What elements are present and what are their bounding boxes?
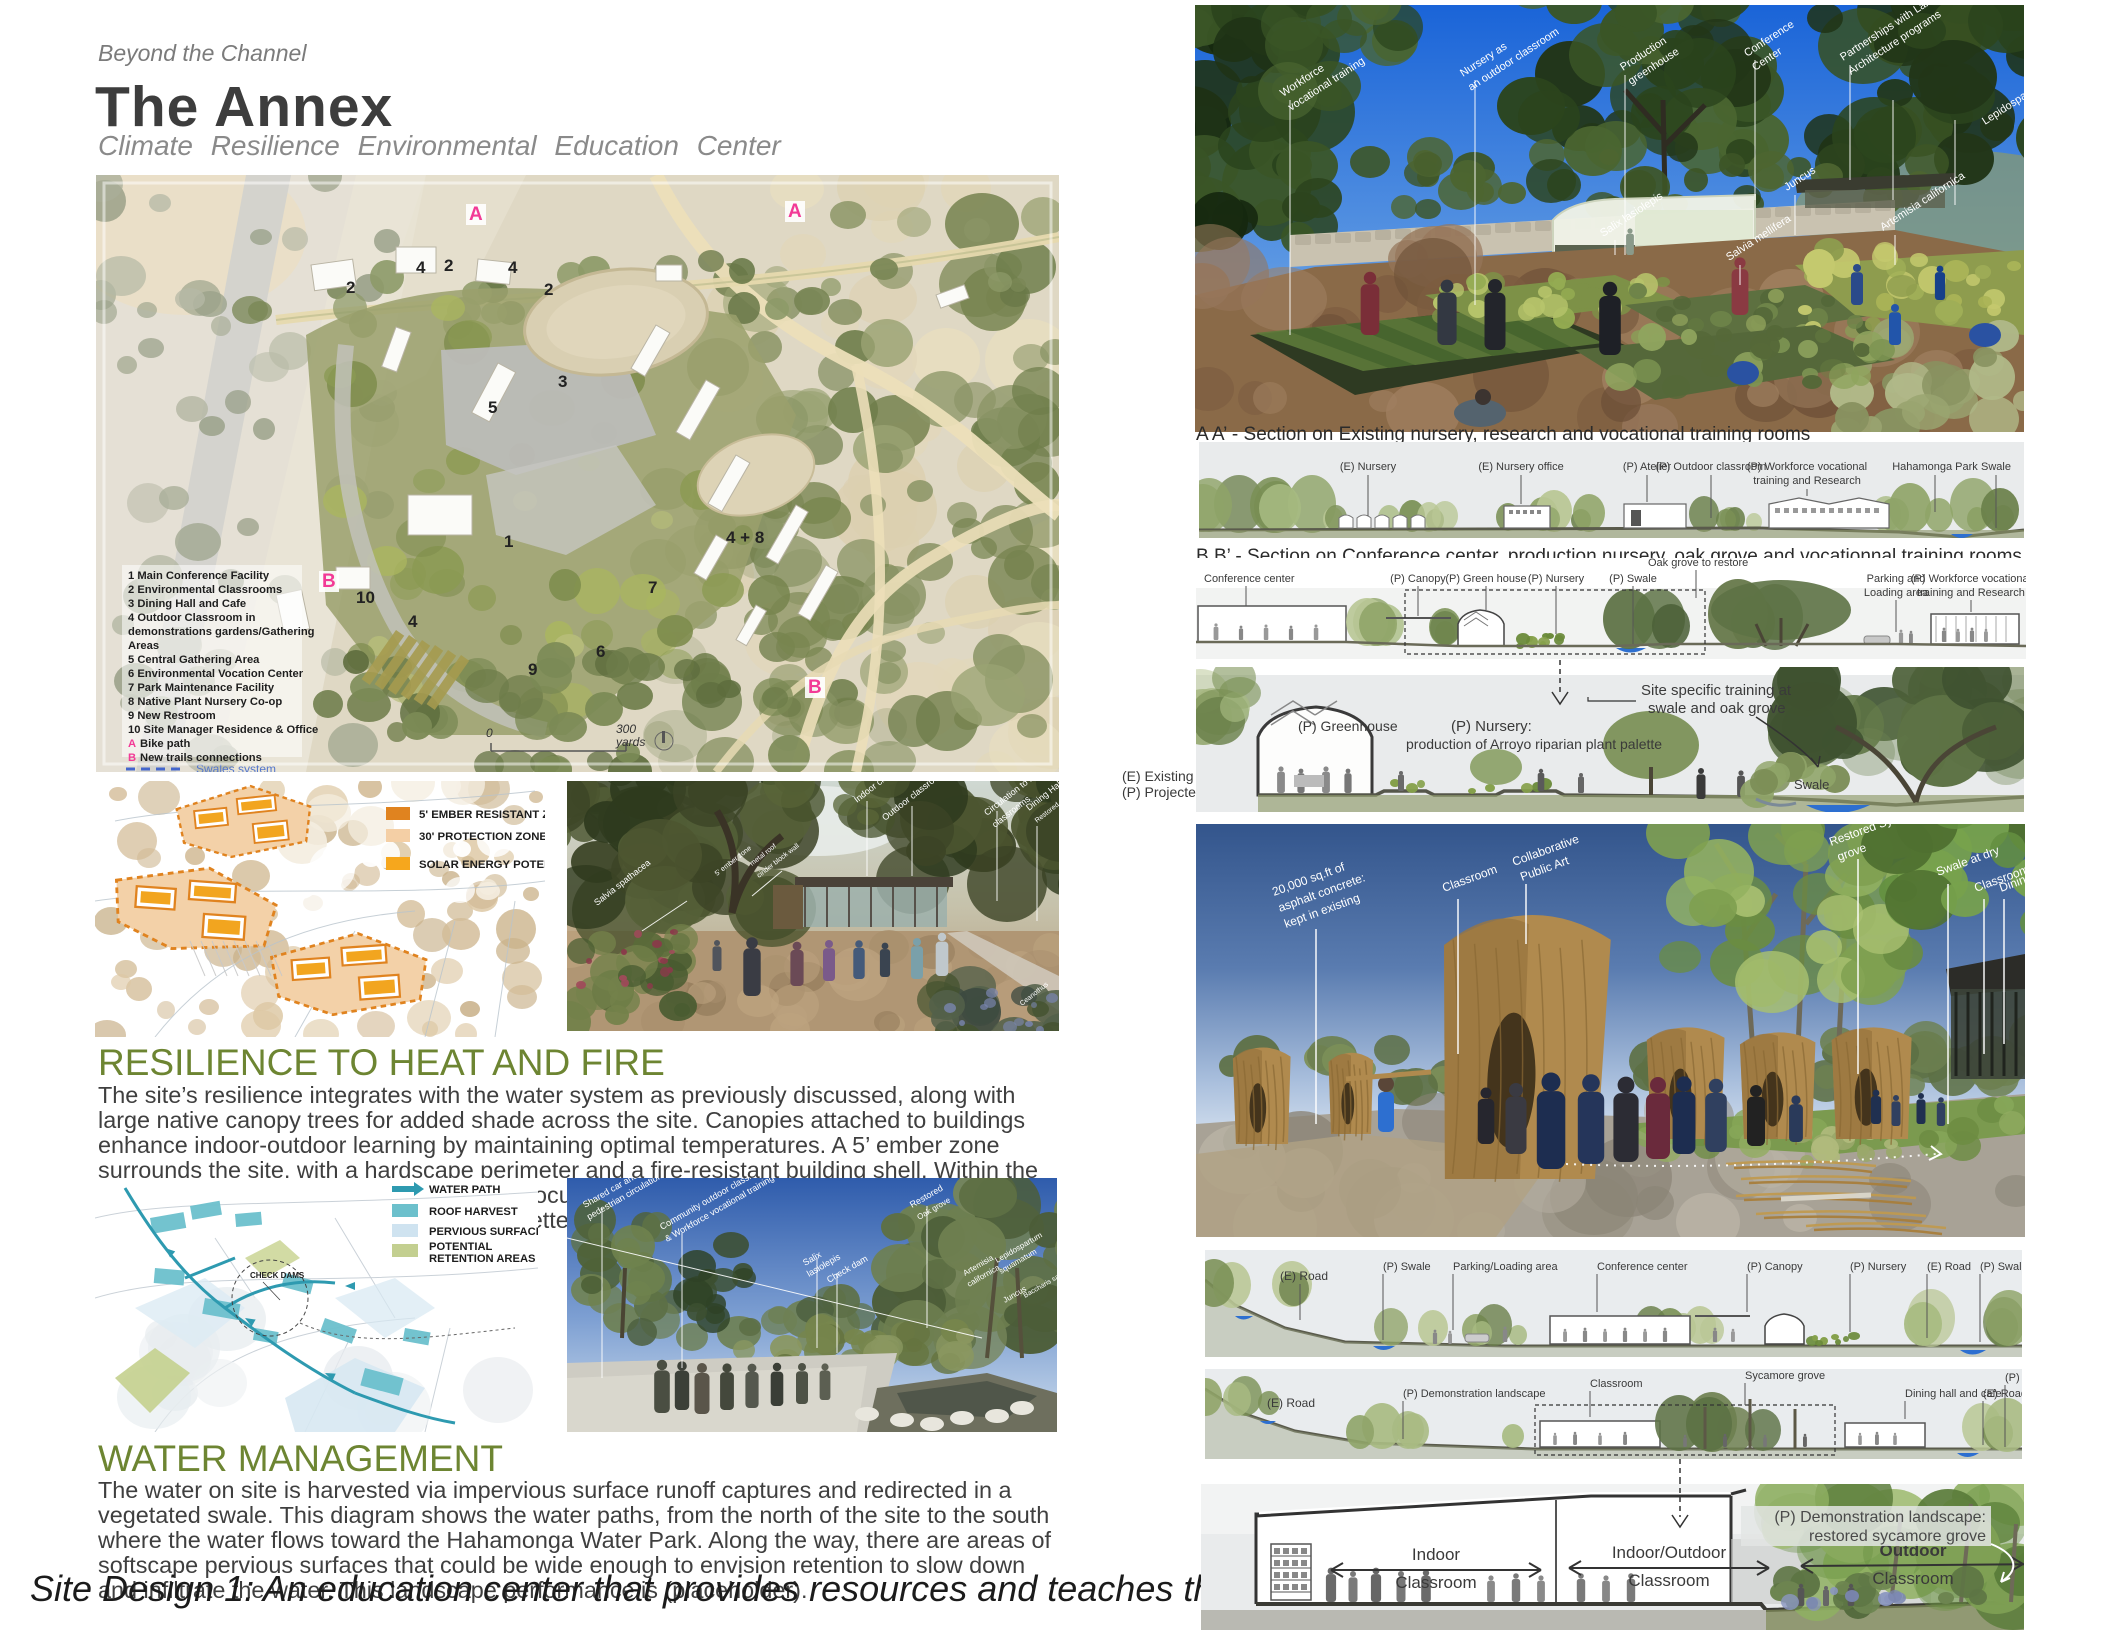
svg-text:2 Environmental Classrooms: 2 Environmental Classrooms: [128, 584, 282, 596]
svg-text:2: 2: [346, 278, 355, 297]
svg-text:5' EMBER RESISTANT ZONE: 5' EMBER RESISTANT ZONE: [419, 809, 545, 821]
svg-text:Bike path: Bike path: [140, 738, 191, 750]
svg-text:B: B: [322, 571, 336, 592]
svg-text:Indoor/Outdoor: Indoor/Outdoor: [1612, 1543, 1727, 1562]
svg-text:(P) Swale: (P) Swale: [1980, 1261, 2022, 1273]
svg-text:SOLAR ENERGY POTENTIAL: SOLAR ENERGY POTENTIAL: [419, 859, 545, 871]
svg-text:6: 6: [596, 642, 605, 661]
svg-text:(P) Canopy: (P) Canopy: [1747, 1261, 1803, 1273]
svg-text:Indoor: Indoor: [1412, 1545, 1461, 1564]
svg-text:(P) Demonstration landscape: (P) Demonstration landscape: [1403, 1388, 1545, 1400]
svg-text:Swale: Swale: [1794, 777, 1829, 792]
svg-text:(P) Green house: (P) Green house: [1445, 573, 1526, 585]
svg-text:6 Environmental Vocation Cente: 6 Environmental Vocation Center: [128, 668, 304, 680]
svg-text:(E) Road: (E) Road: [1983, 1388, 2022, 1400]
svg-text:(E) Nursery office: (E) Nursery office: [1478, 461, 1563, 473]
svg-text:Conference center: Conference center: [1204, 573, 1295, 585]
svg-text:(P) Swale: (P) Swale: [1609, 573, 1657, 585]
svg-text:Swale: Swale: [1981, 461, 2011, 473]
svg-text:training and Research: training and Research: [1753, 475, 1861, 487]
svg-text:PERVIOUS SURFACES: PERVIOUS SURFACES: [429, 1226, 538, 1238]
svg-text:(E) Road: (E) Road: [1927, 1261, 1971, 1273]
svg-text:ROOF HARVEST: ROOF HARVEST: [429, 1206, 518, 1218]
svg-text:300: 300: [616, 722, 636, 736]
svg-text:(P) Workforce vocational: (P) Workforce vocational: [1911, 573, 2026, 585]
svg-text:Areas: Areas: [128, 640, 159, 652]
svg-text:Conference center: Conference center: [1597, 1261, 1688, 1273]
svg-text:1: 1: [504, 532, 513, 551]
svg-text:Classroom: Classroom: [1395, 1573, 1476, 1592]
svg-text:(P) Demonstration landscape:: (P) Demonstration landscape:: [1774, 1509, 1986, 1526]
svg-text:restored sycamore grove: restored sycamore grove: [1809, 1528, 1986, 1545]
svg-text:Sycamore grove: Sycamore grove: [1745, 1370, 1825, 1382]
svg-text:(E) Road: (E) Road: [1267, 1396, 1315, 1410]
svg-text:production of Arroyo riparian: production of Arroyo riparian plant pale…: [1406, 736, 1662, 752]
svg-text:A: A: [788, 201, 802, 222]
svg-text:0: 0: [486, 726, 493, 740]
svg-text:swale and oak grove: swale and oak grove: [1648, 700, 1786, 717]
svg-text:4 Outdoor Classroom in: 4 Outdoor Classroom in: [128, 612, 256, 624]
svg-text:(P) Greenhouse: (P) Greenhouse: [1298, 718, 1398, 734]
svg-text:7: 7: [648, 578, 657, 597]
svg-text:Site specific training at: Site specific training at: [1641, 682, 1792, 699]
svg-text:10: 10: [356, 588, 375, 607]
svg-text:Parking/Loading area: Parking/Loading area: [1453, 1261, 1558, 1273]
svg-text:4 + 8: 4 + 8: [726, 528, 764, 547]
svg-text:(E) Nursery: (E) Nursery: [1340, 461, 1397, 473]
svg-text:(P) Nursery:: (P) Nursery:: [1451, 718, 1532, 735]
svg-text:4: 4: [416, 258, 426, 277]
svg-text:POTENTIAL: POTENTIAL: [429, 1241, 493, 1253]
svg-text:5: 5: [488, 398, 497, 417]
svg-text:1 Main Conference Facility: 1 Main Conference Facility: [128, 570, 270, 582]
svg-text:4: 4: [508, 258, 518, 277]
svg-text:7 Park Maintenance Facility: 7 Park Maintenance Facility: [128, 682, 275, 694]
svg-text:(P) Nursery: (P) Nursery: [1850, 1261, 1907, 1273]
svg-text:(P) Canopy: (P) Canopy: [1390, 573, 1446, 585]
svg-text:Classroom: Classroom: [1628, 1571, 1709, 1590]
svg-text:(P) Workforce vocational: (P) Workforce vocational: [1747, 461, 1867, 473]
svg-text:RETENTION AREAS: RETENTION AREAS: [429, 1253, 536, 1265]
svg-text:CHECK DAMS: CHECK DAMS: [250, 1271, 305, 1280]
svg-text:3 Dining Hall and Cafe: 3 Dining Hall and Cafe: [128, 598, 246, 610]
svg-text:9 New Restroom: 9 New Restroom: [128, 710, 216, 722]
svg-text:4: 4: [408, 612, 418, 631]
svg-text:5 Central Gathering Area: 5 Central Gathering Area: [128, 654, 260, 666]
svg-text:B: B: [808, 677, 822, 698]
svg-text:8 Native Plant Nursery Co-op: 8 Native Plant Nursery Co-op: [128, 696, 282, 708]
svg-text:WATER PATH: WATER PATH: [429, 1184, 500, 1196]
svg-text:9: 9: [528, 660, 537, 679]
svg-text:(P) Swale: (P) Swale: [1383, 1261, 1431, 1273]
svg-text:(E) Road: (E) Road: [1280, 1269, 1328, 1283]
svg-text:A: A: [469, 204, 483, 225]
svg-text:(P) Nursery: (P) Nursery: [1528, 573, 1585, 585]
svg-text:training and Research: training and Research: [1917, 587, 2025, 599]
svg-text:Oak grove to restore: Oak grove to restore: [1648, 558, 1748, 569]
svg-text:Classroom: Classroom: [1590, 1378, 1643, 1390]
svg-text:10 Site Manager Residence & Of: 10 Site Manager Residence & Office: [128, 724, 318, 736]
svg-text:30' PROTECTION ZONE: 30' PROTECTION ZONE: [419, 831, 545, 843]
svg-text:2: 2: [544, 280, 553, 299]
svg-text:(P) Swale: (P) Swale: [2005, 1372, 2022, 1384]
svg-text:Hahamonga Park: Hahamonga Park: [1892, 461, 1978, 473]
svg-text:A: A: [128, 738, 136, 750]
svg-text:3: 3: [558, 372, 567, 391]
svg-text:B: B: [128, 752, 136, 764]
svg-text:demonstrations gardens/Gatheri: demonstrations gardens/Gathering: [128, 626, 315, 638]
svg-text:2: 2: [444, 256, 453, 275]
svg-text:yards: yards: [615, 735, 645, 749]
svg-text:Classroom: Classroom: [1872, 1569, 1953, 1588]
